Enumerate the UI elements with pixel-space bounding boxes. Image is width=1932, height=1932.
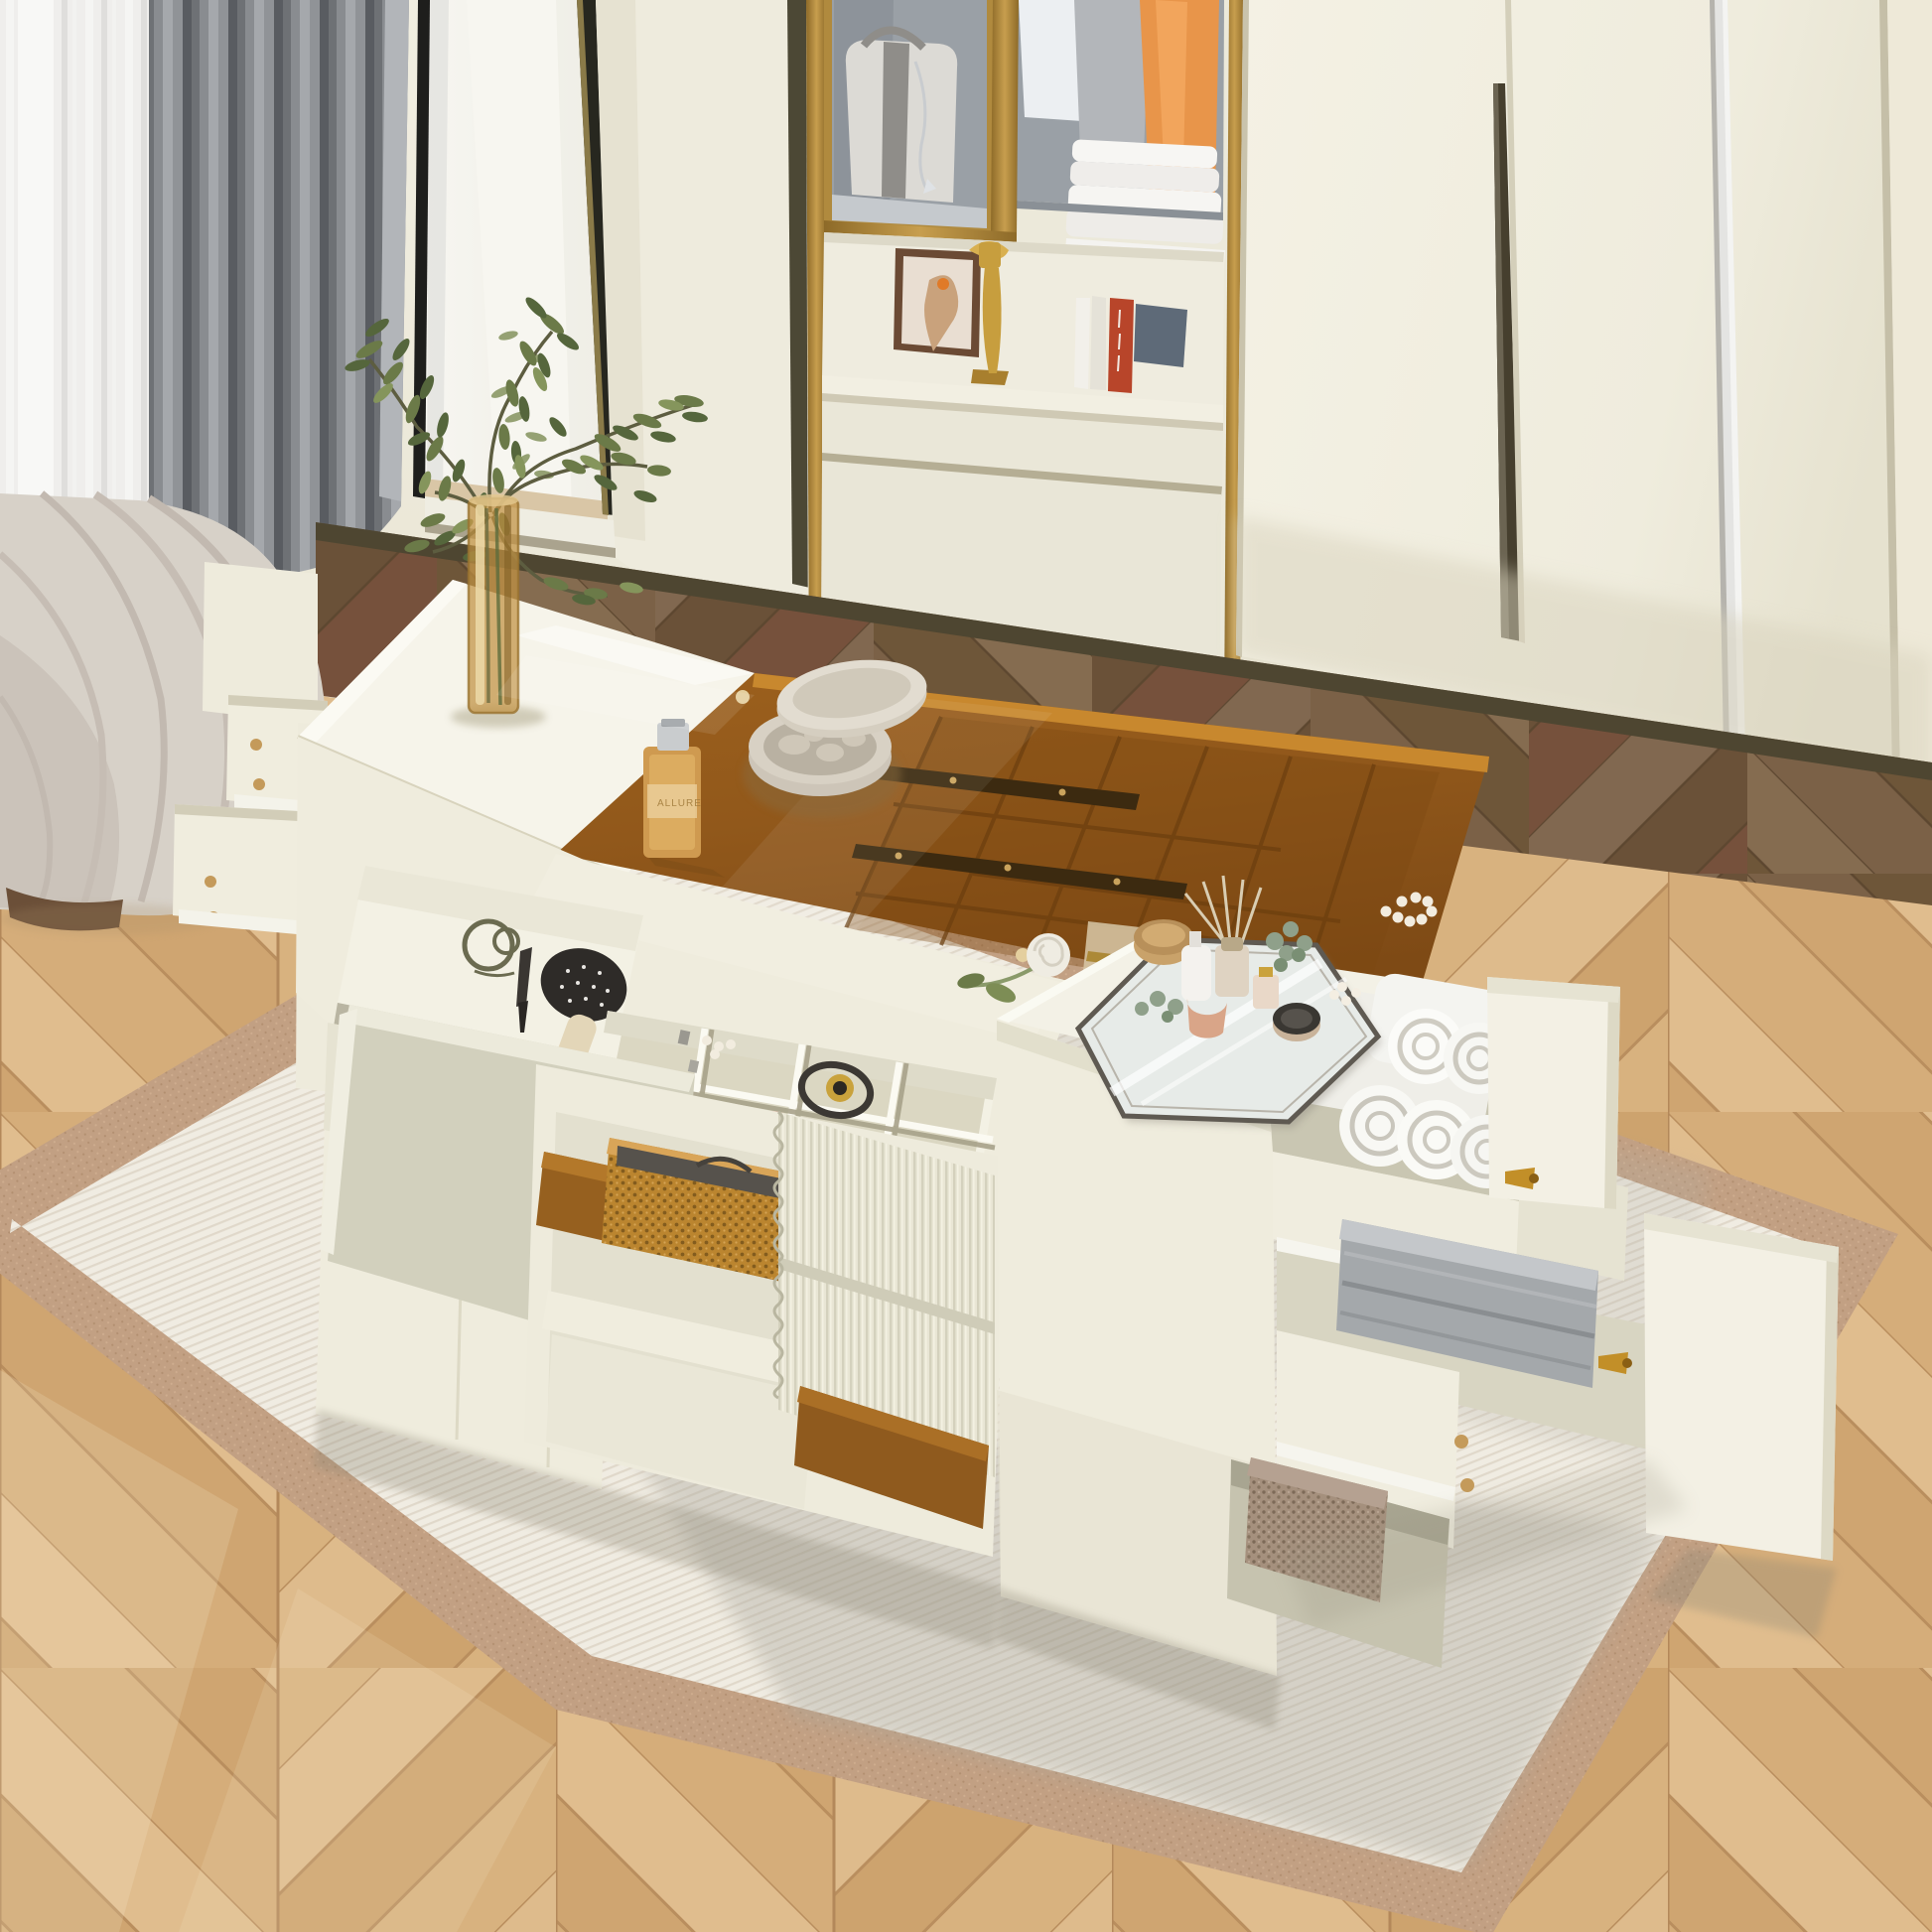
svg-text:ALLURE: ALLURE [657, 798, 702, 809]
